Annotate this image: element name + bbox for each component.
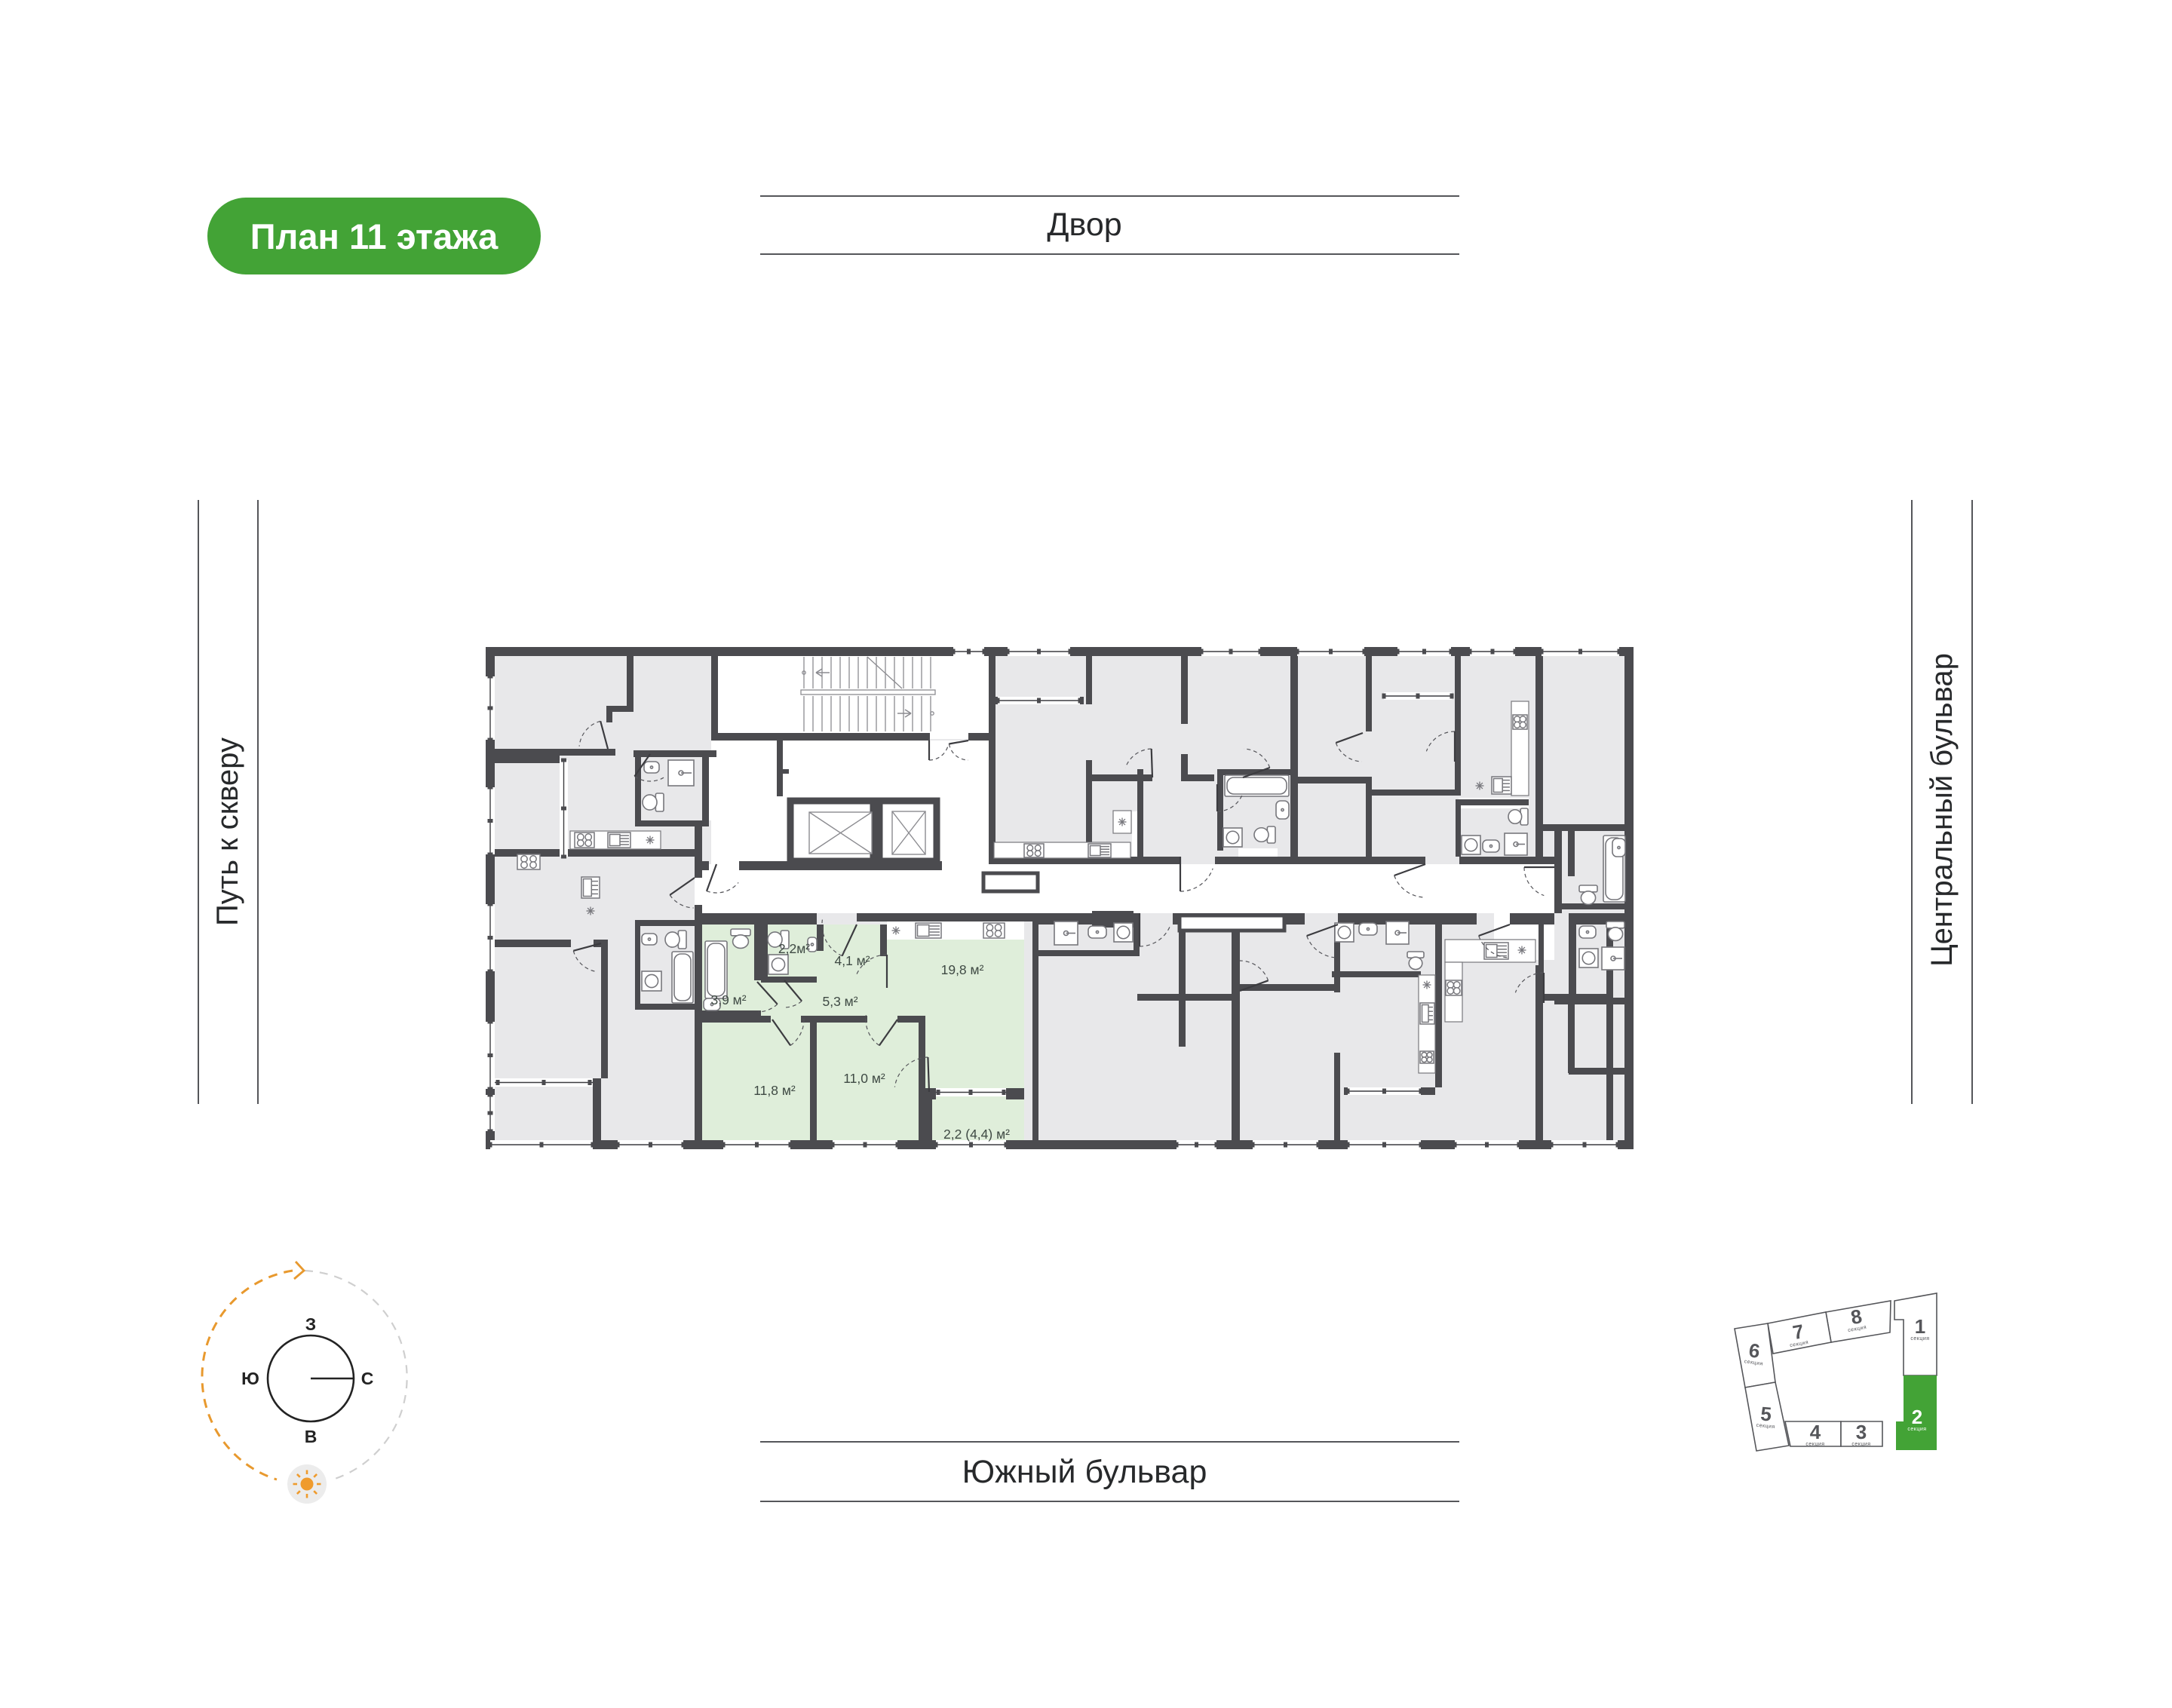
svg-text:В: В [305,1427,318,1446]
svg-text:секция: секция [1907,1427,1926,1432]
svg-text:11,8 м²: 11,8 м² [753,1083,796,1098]
svg-text:11,0 м²: 11,0 м² [843,1071,885,1086]
svg-text:2,2м²: 2,2м² [778,941,810,956]
svg-text:Ю: Ю [241,1369,259,1388]
svg-text:4: 4 [1810,1421,1821,1443]
svg-text:2: 2 [1912,1406,1922,1428]
svg-text:Двор: Двор [1047,207,1121,243]
svg-text:секция: секция [1910,1336,1929,1342]
svg-text:Центральный бульвар: Центральный бульвар [1925,653,1959,967]
svg-text:Путь к скверу: Путь к скверу [211,737,244,926]
svg-text:5,3 м²: 5,3 м² [822,994,857,1009]
svg-text:1: 1 [1915,1315,1925,1338]
svg-text:3,9 м²: 3,9 м² [710,992,746,1007]
svg-text:С: С [361,1369,374,1388]
svg-text:2,2 (4,4) м²: 2,2 (4,4) м² [943,1127,1010,1142]
svg-text:Южный бульвар: Южный бульвар [962,1454,1207,1490]
svg-text:5: 5 [1759,1402,1772,1425]
svg-text:4,1 м²: 4,1 м² [834,953,870,968]
svg-text:3: 3 [1856,1421,1867,1443]
svg-text:План 11 этажа: План 11 этажа [250,216,499,256]
svg-text:секция: секция [1805,1442,1824,1447]
svg-text:секция: секция [1851,1442,1870,1447]
svg-text:19,8 м²: 19,8 м² [941,962,984,977]
svg-text:З: З [305,1314,316,1334]
